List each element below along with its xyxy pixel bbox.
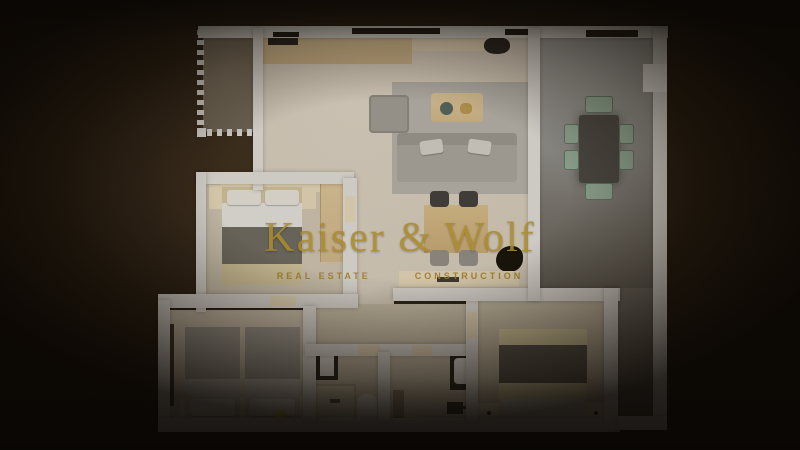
window-top-1: [273, 32, 299, 37]
walls-layer: [0, 0, 800, 450]
window-top-terrace: [586, 30, 638, 37]
terrace-pillar: [643, 64, 667, 92]
wall-living-east: [528, 28, 540, 301]
wall-west-lower: [158, 300, 170, 430]
wall-bathrooms-divider: [378, 352, 390, 422]
door-bathroom1: [358, 345, 380, 355]
wall-bedroom1-west: [196, 172, 206, 312]
window-top-3: [505, 29, 529, 35]
door-bathroom2: [412, 345, 432, 355]
window-top-2: [352, 28, 440, 34]
wall-terrace-bottom: [617, 416, 667, 430]
wall-bedroom1-north: [196, 172, 354, 184]
wall-bedroom1-south: [158, 294, 358, 308]
door-bedroom2: [270, 296, 296, 306]
floorplan-render: Kaiser & Wolf REAL ESTATECONSTRUCTION: [0, 0, 800, 450]
wall-bedroom2-east: [303, 306, 316, 422]
wall-bedroom3-east: [604, 288, 618, 430]
wall-living-west: [253, 28, 263, 190]
wall-bathrooms-north: [305, 344, 475, 356]
balcony-corner-post: [197, 128, 206, 137]
wall-living-south: [393, 288, 620, 301]
door-bedroom1: [345, 196, 355, 222]
door-bedroom3: [467, 312, 477, 338]
